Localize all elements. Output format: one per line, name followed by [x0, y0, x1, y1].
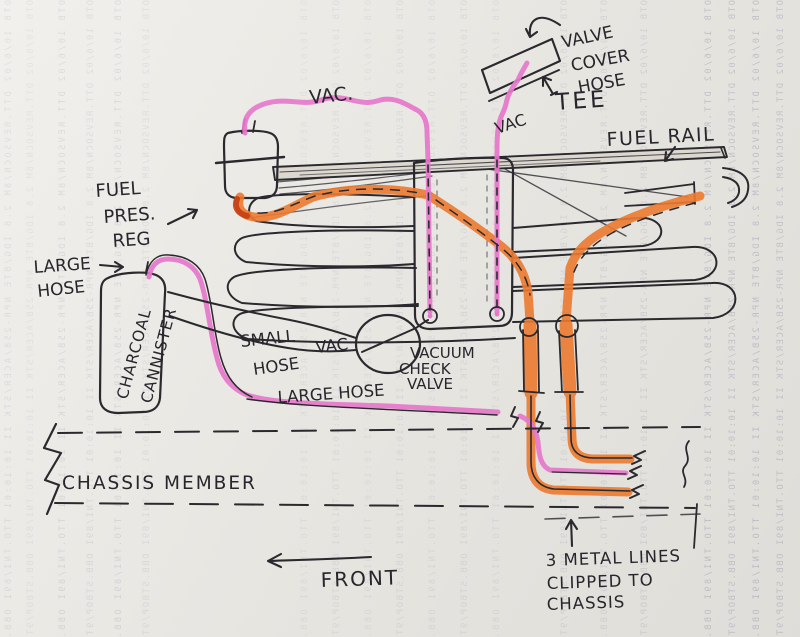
intake-runner-right-2	[513, 247, 716, 287]
metal-line-centerline	[531, 396, 630, 491]
label-fuel-pres-reg-3: REG	[112, 228, 151, 252]
intake-runner-left-3	[228, 267, 418, 306]
scanned-paper-page: OTB 10/6/02 DTT.REVSOCN/8M 2.8 IDG/BTE N…	[0, 0, 800, 637]
label-fuel-pres-reg-2: PRES.	[103, 203, 156, 228]
vac-port-dot	[428, 314, 433, 319]
front-direction-arrow	[268, 554, 371, 567]
line-break-zigzag	[628, 466, 641, 479]
label-metal-lines-2: CLIPPED TO	[546, 570, 654, 593]
chassis-dashed-line-lower	[55, 503, 695, 508]
fuel-pressure-regulator-shape	[216, 119, 284, 198]
vac-port-dot	[495, 312, 500, 317]
label-front: FRONT	[320, 565, 399, 592]
label-metal-lines-1: 3 METAL LINES	[545, 546, 681, 570]
chassis-break-zigzag-left	[44, 424, 61, 514]
metal-line-right-pipe	[566, 325, 570, 392]
metal-line-centerline	[570, 395, 632, 458]
fuel-pres-reg-arrow	[168, 209, 197, 224]
metal-line-right-lower	[570, 392, 630, 459]
fuel-line-supply-diagonal	[428, 195, 530, 322]
valve-cover-arrow	[526, 18, 560, 37]
label-vac-mid: VAC	[492, 110, 528, 138]
label-small-vac-hose-2: VAC	[314, 335, 349, 357]
fuel-line-return-hose	[566, 196, 700, 322]
label-vac-top: VAC.	[308, 83, 354, 109]
label-vacuum-check-valve-3: VALVE	[407, 375, 453, 393]
vac-hose-regulator	[245, 98, 430, 312]
label-large-hose-left-1: LARGE	[33, 254, 91, 278]
label-small-vac-hose-3: HOSE	[252, 354, 300, 379]
metal-line-left-lower	[531, 393, 628, 492]
chassis-dashed-line-upper	[58, 427, 700, 433]
hose-routing-diagram: VAC. VALVE COVER HOSE TEE VAC FUEL RAIL …	[0, 0, 800, 637]
label-valve-cover-hose-1: VALVE	[560, 22, 615, 52]
intake-runner-right-3	[513, 283, 735, 322]
label-fuel-pres-reg-1: FUEL	[95, 178, 141, 202]
chassis-dashed-line-extra	[545, 514, 700, 519]
label-large-hose-left-2: HOSE	[36, 277, 86, 302]
chassis-break-squiggle-right	[683, 441, 689, 487]
label-fuel-rail: FUEL RAIL	[606, 123, 716, 151]
intake-runner-left-2	[235, 230, 414, 266]
metal-lines-arrow	[566, 520, 577, 546]
label-chassis-member: CHASSIS MEMBER	[62, 473, 257, 494]
chassis-edge-right	[694, 504, 697, 548]
label-metal-lines-3: CHASSIS	[546, 592, 625, 614]
hose-junction-zigzag	[511, 407, 518, 427]
label-tee: TEE	[554, 86, 609, 116]
large-hose-arrow	[100, 262, 123, 272]
